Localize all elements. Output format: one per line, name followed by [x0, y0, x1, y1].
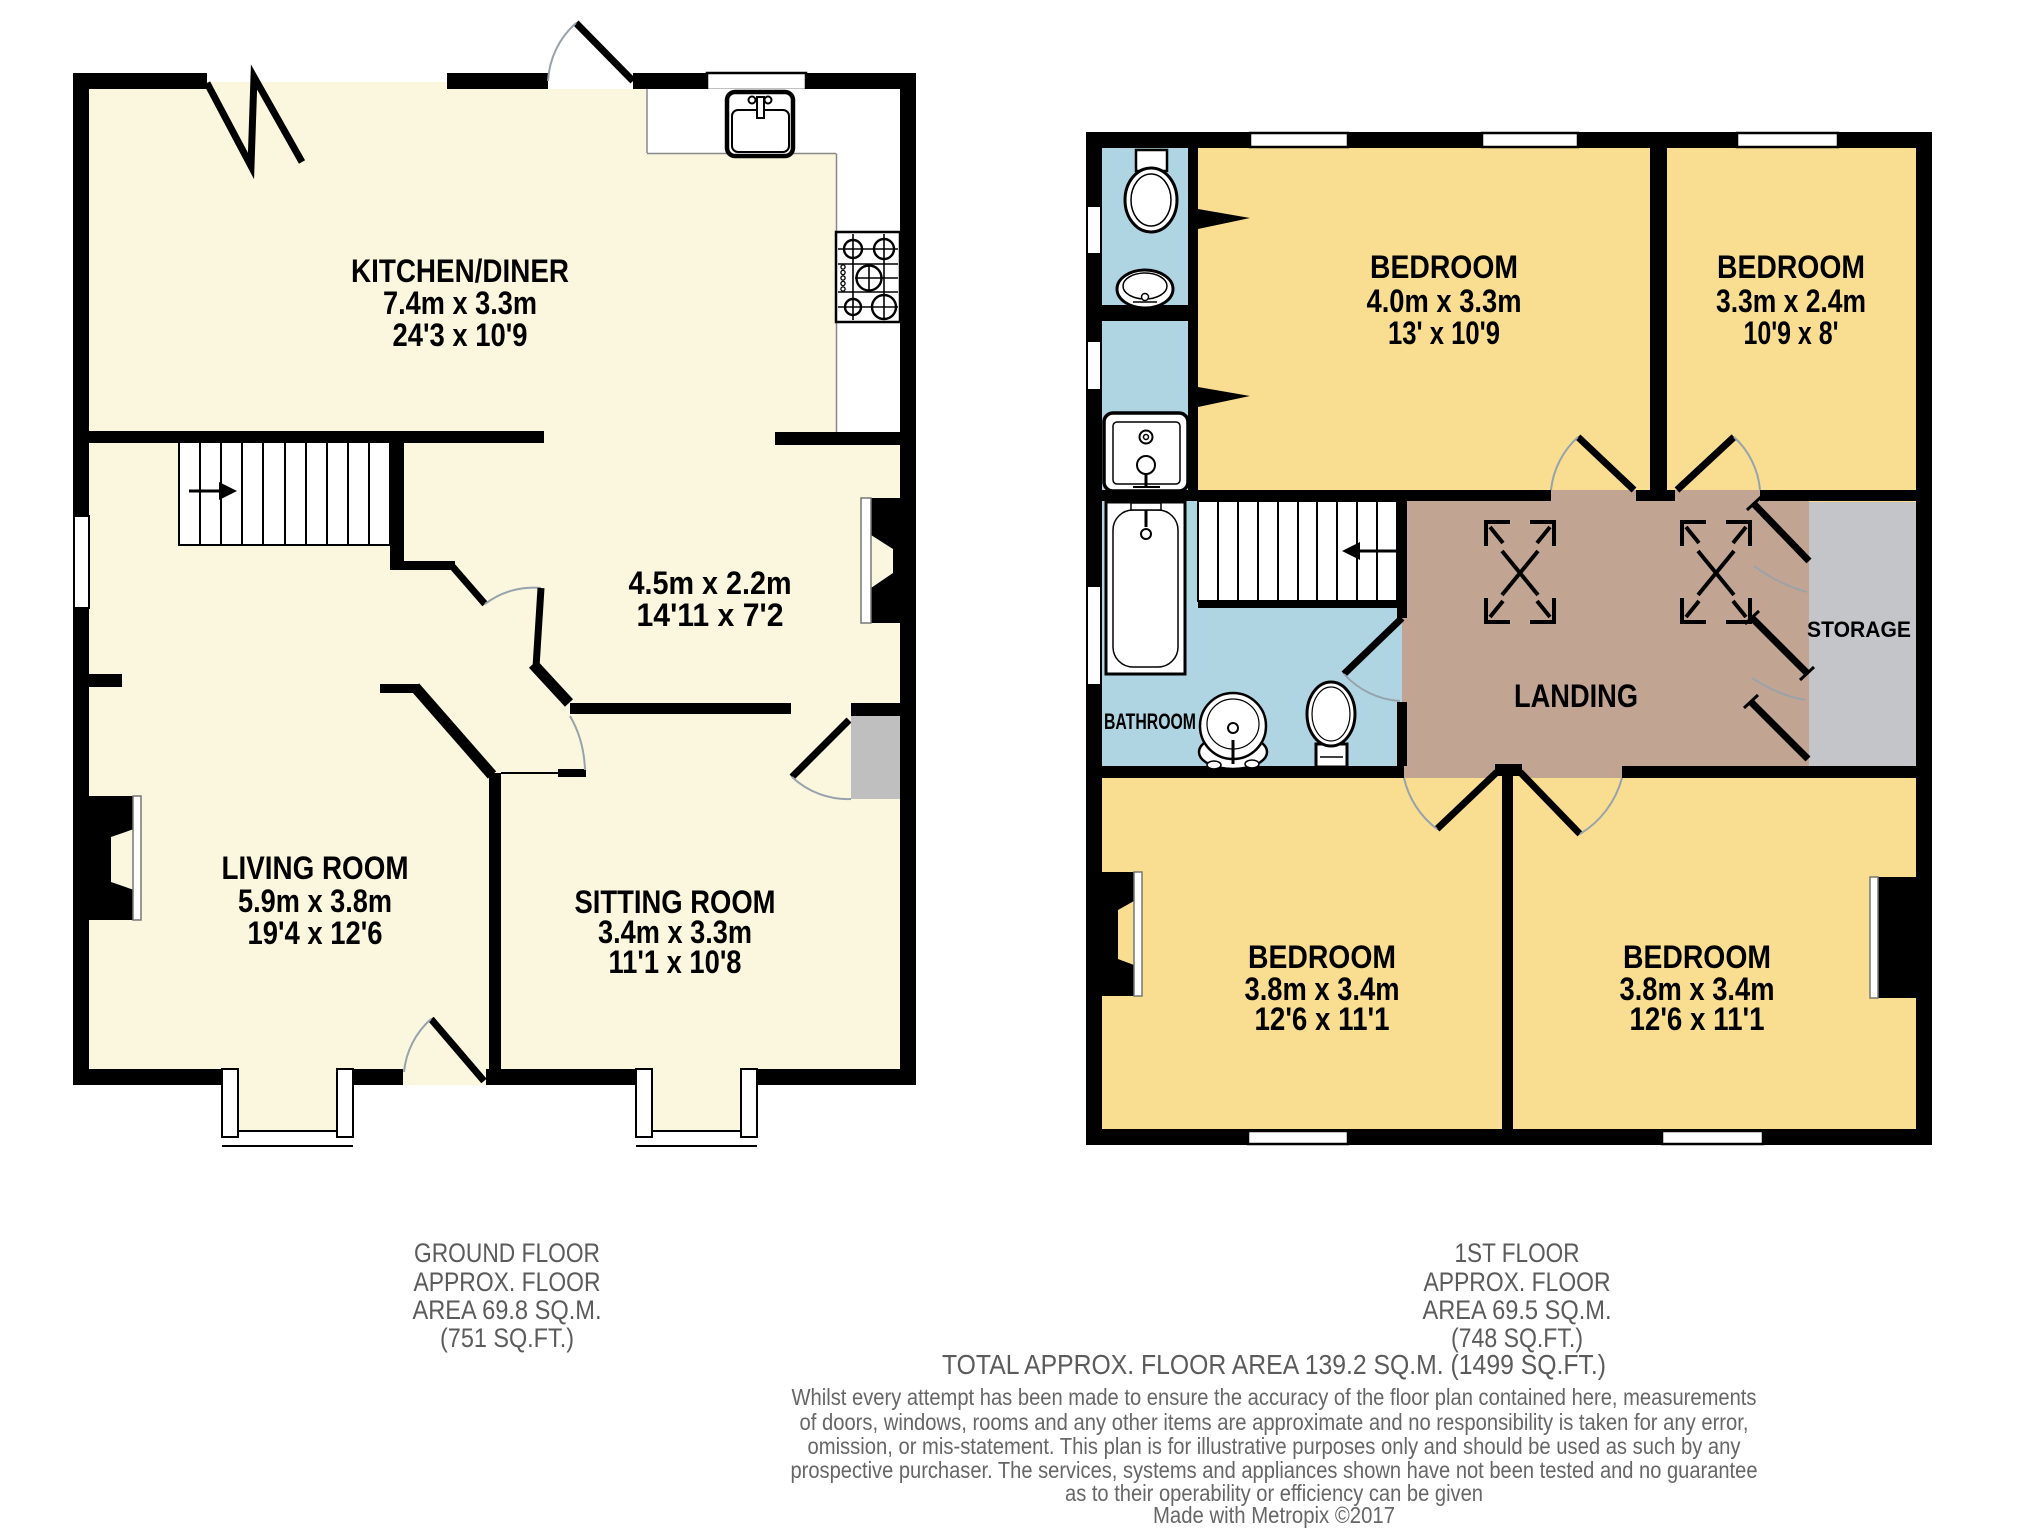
svg-text:3.3m x 2.4m: 3.3m x 2.4m	[1716, 283, 1866, 319]
svg-text:AREA 69.8 SQ.M.: AREA 69.8 SQ.M.	[413, 1295, 602, 1325]
svg-text:12'6 x 11'1: 12'6 x 11'1	[1255, 1001, 1390, 1037]
svg-text:GROUND FLOOR: GROUND FLOOR	[414, 1238, 600, 1268]
svg-text:LANDING: LANDING	[1514, 678, 1638, 714]
svg-text:13' x 10'9: 13' x 10'9	[1388, 315, 1500, 351]
svg-text:(751 SQ.FT.): (751 SQ.FT.)	[440, 1323, 574, 1353]
svg-text:APPROX. FLOOR: APPROX. FLOOR	[414, 1267, 601, 1297]
svg-text:STORAGE: STORAGE	[1807, 617, 1911, 642]
svg-text:5.9m x 3.8m: 5.9m x 3.8m	[238, 883, 392, 919]
svg-text:BATHROOM: BATHROOM	[1104, 709, 1196, 734]
svg-text:4.5m x 2.2m: 4.5m x 2.2m	[629, 565, 792, 601]
svg-text:1ST FLOOR: 1ST FLOOR	[1455, 1238, 1580, 1268]
svg-text:KITCHEN/DINER: KITCHEN/DINER	[351, 253, 569, 289]
svg-text:7.4m x 3.3m: 7.4m x 3.3m	[383, 285, 537, 321]
svg-text:APPROX. FLOOR: APPROX. FLOOR	[1424, 1267, 1611, 1297]
svg-text:Made with Metropix ©2017: Made with Metropix ©2017	[1153, 1502, 1395, 1528]
svg-text:12'6 x 11'1: 12'6 x 11'1	[1630, 1001, 1765, 1037]
svg-text:AREA 69.5 SQ.M.: AREA 69.5 SQ.M.	[1423, 1295, 1612, 1325]
svg-text:14'11 x 7'2: 14'11 x 7'2	[637, 597, 784, 633]
svg-text:4.0m x 3.3m: 4.0m x 3.3m	[1367, 283, 1522, 319]
svg-text:BEDROOM: BEDROOM	[1248, 939, 1396, 975]
svg-text:TOTAL APPROX. FLOOR AREA 139.2: TOTAL APPROX. FLOOR AREA 139.2 SQ.M. (14…	[942, 1349, 1606, 1380]
svg-text:BEDROOM: BEDROOM	[1717, 249, 1865, 285]
svg-text:Whilst every attempt has been: Whilst every attempt has been made to en…	[792, 1384, 1757, 1410]
svg-text:BEDROOM: BEDROOM	[1370, 249, 1518, 285]
svg-text:omission, or mis-statement. Th: omission, or mis-statement. This plan is…	[808, 1433, 1741, 1459]
svg-text:of doors, windows, rooms and a: of doors, windows, rooms and any other i…	[800, 1409, 1749, 1435]
svg-text:10'9 x 8': 10'9 x 8'	[1744, 315, 1839, 351]
svg-text:LIVING ROOM: LIVING ROOM	[222, 850, 409, 886]
svg-text:BEDROOM: BEDROOM	[1623, 939, 1771, 975]
svg-text:19'4 x 12'6: 19'4 x 12'6	[248, 915, 383, 951]
svg-text:24'3 x 10'9: 24'3 x 10'9	[393, 317, 528, 353]
svg-text:11'1 x 10'8: 11'1 x 10'8	[609, 944, 742, 980]
